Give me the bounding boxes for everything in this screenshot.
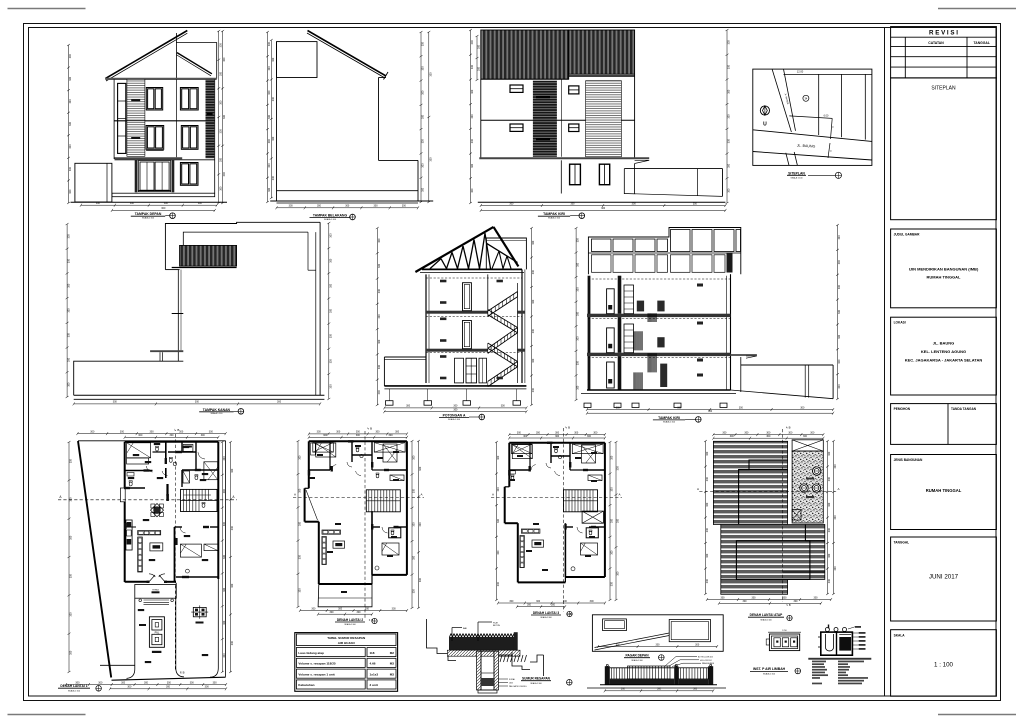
svg-text:300: 300 [632,202,637,205]
svg-text:300: 300 [617,518,620,523]
svg-text:DENAH LANTAI 3: DENAH LANTAI 3 [533,611,560,615]
svg-text:300: 300 [828,502,831,507]
svg-text:300: 300 [834,464,837,469]
svg-text:300: 300 [90,430,95,433]
svg-text:300: 300 [828,528,831,533]
svg-text:300: 300 [577,238,580,243]
svg-text:300: 300 [532,329,535,334]
svg-text:300: 300 [453,409,458,412]
svg-text:300: 300 [788,431,793,434]
svg-text:SKALA 1:100: SKALA 1:100 [760,618,771,621]
svg-text:DENAH LANTAI ATAP: DENAH LANTAI ATAP [750,613,784,617]
svg-text:JL. BAUNG: JL. BAUNG [797,144,816,149]
svg-text:300: 300 [127,686,132,689]
svg-text:KORAL: KORAL [509,678,515,681]
svg-text:300: 300 [497,487,500,492]
svg-text:R E V I S I: R E V I S I [929,30,958,37]
svg-text:A: A [492,493,494,497]
svg-text:DENAH LANTAI 1: DENAH LANTAI 1 [60,684,87,688]
svg-text:300: 300 [509,202,514,205]
svg-text:Volume s. resapan 1 unit: Volume s. resapan 1 unit [298,672,334,676]
svg-text:300: 300 [190,681,195,684]
svg-text:300: 300 [471,139,474,144]
svg-text:300: 300 [693,202,698,205]
svg-text:KEL. LENTENG AGUNG: KEL. LENTENG AGUNG [921,349,966,354]
svg-text:300: 300 [69,166,72,171]
svg-text:300: 300 [422,66,425,71]
svg-text:U: U [763,122,767,128]
svg-text:A: A [232,495,235,499]
svg-text:SITEPLAN: SITEPLAN [788,171,805,175]
svg-text:300: 300 [378,339,381,344]
svg-text:300: 300 [231,583,234,588]
svg-text:300: 300 [413,589,416,594]
svg-text:300: 300 [617,571,620,576]
svg-text:300: 300 [68,382,71,387]
svg-text:300: 300 [223,172,226,177]
svg-text:300: 300 [838,309,841,314]
svg-text:300: 300 [338,607,343,610]
svg-text:300: 300 [616,643,621,646]
svg-text:PEMOHON: PEMOHON [894,407,911,411]
svg-text:TERAS: TERAS [152,589,159,592]
svg-text:300: 300 [656,643,661,646]
svg-text:↳ B: ↳ B [786,426,791,430]
svg-text:300: 300 [838,235,841,240]
svg-text:300: 300 [389,434,394,437]
svg-text:300: 300 [219,129,222,134]
svg-text:300: 300 [219,157,222,162]
svg-text:A: A [420,493,422,497]
svg-text:300: 300 [677,406,682,409]
svg-text:300: 300 [532,299,535,304]
svg-text:300: 300 [828,451,831,456]
svg-text:300: 300 [419,522,422,527]
svg-text:300: 300 [329,308,332,313]
svg-text:300: 300 [329,333,332,338]
svg-text:300: 300 [706,528,709,533]
svg-text:300: 300 [130,202,135,205]
svg-text:300: 300 [838,284,841,289]
svg-text:300: 300 [277,401,282,404]
svg-text:300: 300 [611,550,614,555]
svg-text:300: 300 [402,205,407,208]
svg-text:300: 300 [231,526,234,531]
svg-text:300: 300 [422,163,425,168]
svg-text:300: 300 [422,41,425,46]
svg-text:BETON: BETON [493,625,500,627]
svg-text:300: 300 [69,189,72,194]
svg-text:300: 300 [611,582,614,587]
svg-text:300: 300 [721,596,726,599]
svg-text:300: 300 [728,64,731,69]
svg-text:300: 300 [728,89,731,94]
svg-text:SKALA 1:100: SKALA 1:100 [68,689,81,692]
svg-text:300: 300 [378,263,381,268]
svg-text:300: 300 [68,333,71,338]
svg-text:300: 300 [744,431,749,434]
svg-text:300: 300 [419,578,422,583]
svg-text:300: 300 [523,435,528,438]
svg-text:300: 300 [611,487,614,492]
svg-text:300: 300 [577,311,580,316]
svg-text:SKALA 1:100: SKALA 1:100 [791,176,804,179]
svg-text:DENAH LANTAI 2: DENAH LANTAI 2 [337,618,364,622]
svg-text:300: 300 [356,434,361,437]
svg-text:TAMPAK KANAN: TAMPAK KANAN [203,408,231,412]
svg-text:SITEPLAN: SITEPLAN [931,86,956,92]
svg-text:300: 300 [471,114,474,119]
svg-text:Volume s. resapan 118/25: Volume s. resapan 118/25 [298,662,336,666]
svg-text:300: 300 [571,202,576,205]
svg-text:300: 300 [329,233,332,238]
svg-text:TAMPAK BELAKANG: TAMPAK BELAKANG [313,214,348,218]
svg-text:300: 300 [838,260,841,265]
svg-text:300: 300 [164,202,169,205]
svg-text:↳ B: ↳ B [174,428,179,432]
svg-text:300: 300 [231,641,234,646]
svg-text:300: 300 [810,431,815,434]
svg-text:300: 300 [587,435,592,438]
svg-text:M3: M3 [390,672,395,676]
svg-text:300: 300 [766,431,771,434]
svg-text:300: 300 [69,76,72,81]
svg-text:300: 300 [223,114,226,119]
svg-text:300: 300 [345,205,350,208]
svg-text:300: 300 [395,431,400,434]
svg-text:JUDUL GAMBAR: JUDUL GAMBAR [894,233,920,237]
svg-text:300: 300 [577,336,580,341]
svg-text:300: 300 [422,114,425,119]
svg-text:300: 300 [422,90,425,95]
svg-text:2 unit: 2 unit [370,683,378,687]
svg-text:300: 300 [532,388,535,393]
svg-text:300: 300 [268,66,271,71]
svg-text:300: 300 [268,163,271,168]
svg-text:300: 300 [743,600,748,603]
svg-text:300: 300 [299,488,302,493]
svg-text:118: 118 [370,651,375,655]
svg-text:300: 300 [231,468,234,473]
svg-text:300: 300 [413,488,416,493]
svg-text:300: 300 [708,410,713,413]
svg-text:300: 300 [299,521,302,526]
svg-text:300: 300 [289,205,294,208]
svg-text:300: 300 [413,455,416,460]
svg-text:SKALA 1:100: SKALA 1:100 [663,420,676,423]
svg-text:SKALA 1:100: SKALA 1:100 [540,616,551,619]
svg-text:300: 300 [209,430,214,433]
svg-text:300: 300 [739,406,744,409]
svg-text:PAGAR DEPAN: PAGAR DEPAN [625,654,649,658]
svg-text:300: 300 [70,459,73,464]
svg-text:300: 300 [828,477,831,482]
svg-text:300: 300 [365,607,370,610]
svg-text:Luas bidang atap: Luas bidang atap [298,651,324,655]
svg-text:300: 300 [657,688,662,691]
svg-text:A: A [618,493,620,497]
svg-text:300: 300 [471,64,474,69]
svg-text:300: 300 [413,555,416,560]
svg-text:300: 300 [536,600,541,603]
svg-text:300: 300 [800,406,805,409]
svg-text:↳ B: ↳ B [565,426,570,430]
svg-text:300: 300 [330,611,335,614]
svg-text:JL. BAUNG: JL. BAUNG [933,341,955,346]
svg-text:300: 300 [392,607,397,610]
svg-text:SKALA 1:100: SKALA 1:100 [344,623,355,626]
svg-text:300: 300 [205,686,210,689]
svg-text:300: 300 [378,314,381,319]
svg-text:300: 300 [617,466,620,471]
svg-text:300: 300 [838,359,841,364]
svg-text:1700: 1700 [782,630,787,632]
svg-text:SKALA 1:100: SKALA 1:100 [142,217,155,220]
svg-text:CATATAN: CATATAN [928,41,944,45]
svg-text:300: 300 [69,121,72,126]
svg-text:300: 300 [422,139,425,144]
svg-text:300: 300 [478,66,481,71]
svg-text:300: 300 [311,607,316,610]
svg-text:300: 300 [272,57,275,62]
svg-text:SKALA 1:100: SKALA 1:100 [763,673,776,676]
svg-text:300: 300 [69,99,72,104]
svg-text:300: 300 [828,579,831,584]
svg-text:300: 300 [621,688,626,691]
svg-text:SKALA: SKALA [894,634,906,638]
svg-text:300: 300 [299,588,302,593]
svg-text:300: 300 [611,518,614,523]
svg-text:300: 300 [323,434,328,437]
svg-text:300: 300 [179,430,184,433]
svg-text:300: 300 [219,71,222,76]
svg-text:RUMAH TINGGAL: RUMAH TINGGAL [927,275,962,280]
svg-text:300: 300 [706,451,709,456]
svg-text:300: 300 [834,566,837,571]
svg-text:300: 300 [96,202,101,205]
svg-text:300: 300 [527,604,532,607]
svg-text:300: 300 [69,144,72,149]
svg-text:300: 300 [161,207,166,210]
svg-text:↳ B: ↳ B [367,427,372,431]
svg-text:300: 300 [577,385,580,390]
svg-text:300: 300 [272,136,275,141]
svg-text:300: 300 [838,334,841,339]
svg-text:300: 300 [150,430,155,433]
svg-text:300: 300 [828,553,831,558]
svg-text:300: 300 [68,234,71,239]
svg-text:12.00: 12.00 [797,70,804,74]
svg-text:M3: M3 [390,662,395,666]
svg-text:300: 300 [120,430,125,433]
svg-text:300: 300 [728,139,731,144]
svg-text:300: 300 [272,97,275,102]
svg-text:1 : 100: 1 : 100 [934,662,953,669]
svg-text:300: 300 [532,240,535,245]
svg-text:300: 300 [517,431,522,434]
svg-text:300: 300 [555,435,560,438]
svg-text:300: 300 [471,188,474,193]
svg-text:1x1x3: 1x1x3 [370,672,379,676]
svg-text:6: 6 [829,150,832,152]
svg-text:TANGGAL: TANGGAL [894,541,910,545]
svg-text:300: 300 [195,401,200,404]
svg-text:300: 300 [69,54,72,59]
svg-text:300: 300 [268,41,271,46]
svg-text:300: 300 [138,434,143,437]
svg-text:300: 300 [70,574,73,579]
svg-text:↯ B: ↯ B [786,603,791,607]
svg-text:300: 300 [497,455,500,460]
svg-text:IJIN MENDIRIKAN BANGUNAN (IMB): IJIN MENDIRIKAN BANGUNAN (IMB) [909,267,979,272]
svg-text:300: 300 [268,90,271,95]
svg-text:JUNI 2017: JUNI 2017 [929,574,959,581]
svg-text:300: 300 [706,502,709,507]
svg-text:300: 300 [497,518,500,523]
svg-text:300: 300 [536,431,541,434]
svg-text:SKALA 1:100: SKALA 1:100 [530,682,541,685]
svg-text:300: 300 [766,435,771,438]
svg-text:300: 300 [219,43,222,48]
svg-text:300: 300 [70,497,73,502]
svg-text:300: 300 [70,535,73,540]
svg-text:300: 300 [693,688,698,691]
svg-text:300: 300 [419,466,422,471]
svg-text:300: 300 [317,205,322,208]
svg-text:300: 300 [299,455,302,460]
svg-text:INST. P AIR LIMBAH: INST. P AIR LIMBAH [753,667,786,671]
svg-text:300: 300 [532,358,535,363]
svg-text:RUMAH TINGGAL: RUMAH TINGGAL [926,488,962,493]
svg-text:HOLLOW 2X4: HOLLOW 2X4 [700,660,711,662]
svg-text:300: 300 [501,405,506,408]
svg-text:300: 300 [272,176,275,181]
svg-text:TABEL SUMUR RESAPAN: TABEL SUMUR RESAPAN [327,636,366,640]
svg-text:SKALA 1:100: SKALA 1:100 [448,418,461,421]
svg-text:300: 300 [329,359,332,364]
svg-text:300: 300 [752,596,757,599]
svg-text:300: 300 [730,435,735,438]
svg-text:TAMPAK KIRI: TAMPAK KIRI [658,416,680,420]
svg-text:300: 300 [471,89,474,94]
svg-text:300: 300 [374,205,379,208]
svg-text:IJUK: IJUK [509,683,514,685]
svg-text:A: A [294,493,296,497]
svg-text:300: 300 [68,258,71,263]
svg-text:PAS. BATU KOSONG: PAS. BATU KOSONG [509,685,527,688]
svg-text:300: 300 [121,681,126,684]
svg-text:300: 300 [728,114,731,119]
svg-text:300: 300 [357,611,362,614]
svg-text:LOKASI: LOKASI [894,321,906,325]
svg-text:300: 300 [814,596,819,599]
svg-text:300: 300 [144,681,149,684]
svg-text:300: 300 [167,681,172,684]
svg-text:300: 300 [70,612,73,617]
svg-text:300: 300 [783,596,788,599]
svg-text:A: A [59,495,62,499]
svg-text:TAMPAK DEPAN: TAMPAK DEPAN [135,212,162,216]
svg-text:SKALA 1:100: SKALA 1:100 [548,217,561,220]
svg-text:300: 300 [706,553,709,558]
svg-text:RANGKA BESI: RANGKA BESI [702,662,715,665]
svg-text:300: 300 [593,431,598,434]
svg-text:300: 300 [329,384,332,389]
svg-text:300: 300 [68,357,71,362]
svg-text:300: 300 [794,600,799,603]
svg-text:SKALA 1:100: SKALA 1:100 [210,412,223,415]
svg-text:300: 300 [453,405,458,408]
svg-text:300: 300 [213,681,218,684]
svg-text:300: 300 [590,600,595,603]
svg-text:300: 300 [299,555,302,560]
svg-text:300: 300 [219,100,222,105]
svg-text:300: 300 [838,384,841,389]
svg-text:300: 300 [471,163,474,168]
svg-text:KEC. JAGAKARSA - JAKARTA SELAT: KEC. JAGAKARSA - JAKARTA SELATAN [905,358,983,363]
svg-text:300: 300 [722,431,727,434]
svg-text:300: 300 [317,431,322,434]
svg-text:300: 300 [268,114,271,119]
svg-text:300: 300 [329,283,332,288]
svg-text:300: 300 [706,477,709,482]
svg-text:300: 300 [497,582,500,587]
svg-text:300: 300 [803,435,808,438]
svg-text:300: 300 [336,431,341,434]
svg-text:300: 300 [471,40,474,45]
svg-text:Kebutuhan: Kebutuhan [298,683,314,687]
svg-text:300: 300 [532,270,535,275]
svg-text:300: 300 [68,283,71,288]
svg-text:300: 300 [268,187,271,192]
svg-text:300: 300 [378,390,381,395]
svg-text:300: 300 [577,262,580,267]
svg-text:300: 300 [268,139,271,144]
svg-text:PNL: PNL [155,631,160,634]
svg-text:SUMUR RESAPAN: SUMUR RESAPAN [522,677,551,681]
svg-text:300: 300 [70,650,73,655]
svg-text:300: 300 [728,163,731,168]
svg-text:300: 300 [616,406,621,409]
svg-text:SKALA 1:100: SKALA 1:100 [324,218,337,221]
svg-text:A: A [697,487,699,491]
svg-text:300: 300 [375,431,380,434]
svg-text:300: 300 [478,44,481,49]
svg-text:JENIS BANGUNAN: JENIS BANGUNAN [894,458,923,462]
svg-text:300: 300 [219,186,222,191]
svg-text:300: 300 [98,681,103,684]
svg-text:300: 300 [728,188,731,193]
svg-text:300: 300 [728,40,731,45]
svg-text:300: 300 [509,600,514,603]
svg-text:300: 300 [413,522,416,527]
svg-text:300: 300 [170,434,175,437]
svg-text:300: 300 [378,364,381,369]
svg-text:300: 300 [429,72,432,77]
svg-text:AIR HUJAN: AIR HUJAN [338,641,356,645]
svg-text:300: 300 [611,455,614,460]
svg-text:M2: M2 [390,651,395,655]
svg-text:300: 300 [577,360,580,365]
svg-text:300: 300 [378,289,381,294]
svg-text:SKALA 1:100: SKALA 1:100 [631,659,642,662]
svg-text:6.00: 6.00 [824,115,829,118]
svg-text:POTONGAN A: POTONGAN A [443,414,466,418]
svg-text:300: 300 [574,431,579,434]
svg-text:300: 300 [198,202,203,205]
svg-text:300: 300 [577,287,580,292]
svg-text:BV. HOLLOW 4X4: BV. HOLLOW 4X4 [698,657,713,659]
